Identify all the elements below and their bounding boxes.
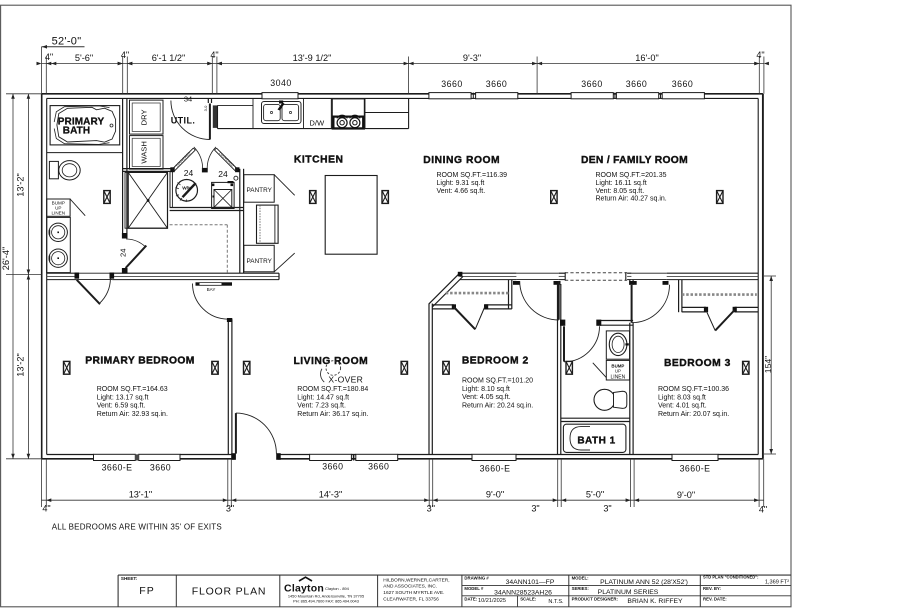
svg-text:LINEN: LINEN xyxy=(611,374,626,380)
svg-text:3": 3" xyxy=(427,504,435,514)
svg-text:FLOOR PLAN: FLOOR PLAN xyxy=(192,586,267,598)
svg-text:Light: 16.11 sq.ft: Light: 16.11 sq.ft xyxy=(596,180,647,187)
svg-text:PANTRY: PANTRY xyxy=(247,187,273,194)
svg-text:BEDROOM 2: BEDROOM 2 xyxy=(462,355,529,366)
svg-text:SERIES:: SERIES: xyxy=(572,586,590,591)
svg-text:34: 34 xyxy=(184,95,192,104)
svg-text:9'-0": 9'-0" xyxy=(677,490,695,500)
svg-text:4": 4" xyxy=(759,505,767,515)
svg-text:4": 4" xyxy=(756,50,764,60)
svg-text:Clayton - 894: Clayton - 894 xyxy=(325,586,350,591)
svg-text:DATE:: DATE: xyxy=(464,597,477,602)
svg-text:LIVING ROOM: LIVING ROOM xyxy=(293,356,368,367)
svg-text:SCALE:: SCALE: xyxy=(520,596,537,601)
svg-text:UTIL.: UTIL. xyxy=(171,116,196,126)
svg-text:3": 3" xyxy=(603,504,611,514)
svg-text:PH: 865.494.7600 FAX: 865.494.: PH: 865.494.7600 FAX: 865.494.0043 xyxy=(293,598,359,603)
svg-text:DEN / FAMILY ROOM: DEN / FAMILY ROOM xyxy=(581,155,688,166)
svg-text:13'-9 1/2": 13'-9 1/2" xyxy=(293,53,332,63)
svg-text:34ANN101—FP: 34ANN101—FP xyxy=(506,579,555,586)
svg-text:PRIMARY BEDROOM: PRIMARY BEDROOM xyxy=(85,356,195,367)
svg-text:BATH 1: BATH 1 xyxy=(577,436,615,447)
svg-text:3": 3" xyxy=(226,504,234,514)
svg-text:PRODUCT DESIGNER:: PRODUCT DESIGNER: xyxy=(572,596,619,601)
svg-text:UP: UP xyxy=(55,205,61,210)
svg-text:KITCHEN: KITCHEN xyxy=(294,155,344,166)
svg-text:BAY: BAY xyxy=(207,287,216,292)
svg-text:1627 SOUTH MYRTLE AVE.: 1627 SOUTH MYRTLE AVE. xyxy=(383,590,444,596)
svg-text:ROOM SQ.FT.=180.84: ROOM SQ.FT.=180.84 xyxy=(297,386,368,393)
svg-text:Light: 9.31 sq.ft: Light: 9.31 sq.ft xyxy=(437,180,485,187)
svg-text:3660-E: 3660-E xyxy=(680,464,711,474)
svg-text:14'-3": 14'-3" xyxy=(319,490,342,500)
svg-text:WASH: WASH xyxy=(140,141,149,164)
svg-text:Light: 8.10 sq.ft: Light: 8.10 sq.ft xyxy=(462,386,510,393)
svg-text:13'-2": 13'-2" xyxy=(16,353,26,376)
svg-text:W/H: W/H xyxy=(182,185,192,191)
svg-text:Light: 13.17 sq.ft: Light: 13.17 sq.ft xyxy=(97,394,149,401)
svg-text:PLATINUM SERIES: PLATINUM SERIES xyxy=(598,589,659,596)
svg-text:3660: 3660 xyxy=(322,461,343,471)
svg-text:D/W: D/W xyxy=(309,119,325,128)
svg-text:PANTRY: PANTRY xyxy=(247,258,273,265)
svg-text:3660: 3660 xyxy=(441,79,463,89)
svg-text:MODEL:: MODEL: xyxy=(572,575,590,580)
svg-text:Return Air: 40.27 sq.in.: Return Air: 40.27 sq.in. xyxy=(596,196,667,203)
svg-text:3660: 3660 xyxy=(672,79,694,89)
svg-text:3040: 3040 xyxy=(270,78,292,88)
svg-text:3": 3" xyxy=(531,504,539,514)
svg-text:Vent: 8.05 sq.ft.: Vent: 8.05 sq.ft. xyxy=(596,188,645,195)
svg-text:ALL BEDROOMS ARE WITHIN 35' OF: ALL BEDROOMS ARE WITHIN 35' OF EXITS xyxy=(52,523,222,532)
svg-text:SHEET:: SHEET: xyxy=(121,576,138,581)
svg-text:Return Air: 20.07 sq.in.: Return Air: 20.07 sq.in. xyxy=(658,411,729,418)
svg-text:Return Air: 36.17 sq.in.: Return Air: 36.17 sq.in. xyxy=(297,411,368,418)
svg-text:13'-2": 13'-2" xyxy=(16,173,26,196)
svg-text:3660: 3660 xyxy=(581,79,603,89)
svg-text:Vent: 4.66 sq.ft.: Vent: 4.66 sq.ft. xyxy=(437,188,486,195)
svg-text:4": 4" xyxy=(45,52,53,62)
svg-text:9'-0": 9'-0" xyxy=(486,490,504,500)
svg-text:5'-6": 5'-6" xyxy=(75,53,93,63)
svg-text:N.T.S.: N.T.S. xyxy=(548,599,564,605)
svg-text:3660: 3660 xyxy=(150,463,171,473)
svg-text:UP: UP xyxy=(615,368,621,373)
svg-text:HILBORN,WERNER,CARTER,: HILBORN,WERNER,CARTER, xyxy=(383,577,449,583)
svg-text:BEDROOM 3: BEDROOM 3 xyxy=(664,358,731,369)
svg-text:4": 4" xyxy=(121,50,129,60)
svg-text:Vent: 6.59 sq.ft.: Vent: 6.59 sq.ft. xyxy=(97,403,146,410)
svg-text:ROOM SQ.FT.=116.39: ROOM SQ.FT.=116.39 xyxy=(437,172,508,179)
svg-text:3660: 3660 xyxy=(368,461,389,471)
svg-text:52'-0": 52'-0" xyxy=(52,35,82,47)
svg-text:REV. DATE:: REV. DATE: xyxy=(703,597,727,602)
svg-text:3660-E: 3660-E xyxy=(480,464,511,474)
svg-text:ROOM SQ.FT.=101.20: ROOM SQ.FT.=101.20 xyxy=(462,378,533,385)
svg-text:AND ASSOCIATES, INC.: AND ASSOCIATES, INC. xyxy=(383,584,437,590)
svg-text:MODEL #: MODEL # xyxy=(464,586,484,591)
svg-text:DINING ROOM: DINING ROOM xyxy=(423,155,500,166)
svg-text:3660-E: 3660-E xyxy=(102,463,133,473)
svg-text:LINEN: LINEN xyxy=(52,211,66,216)
svg-text:FP: FP xyxy=(139,585,154,597)
svg-text:DRY: DRY xyxy=(140,109,149,125)
svg-text:3660: 3660 xyxy=(626,79,648,89)
svg-text:ROOM SQ.FT.=100.36: ROOM SQ.FT.=100.36 xyxy=(658,386,729,393)
svg-text:Vent: 7.23 sq.ft.: Vent: 7.23 sq.ft. xyxy=(297,403,346,410)
svg-text:3660: 3660 xyxy=(486,79,508,89)
svg-text:3-0: 3-0 xyxy=(203,105,208,112)
svg-text:Return Air: 32.93 sq.in.: Return Air: 32.93 sq.in. xyxy=(97,411,168,418)
svg-text:DRAWING #: DRAWING # xyxy=(464,575,489,580)
svg-text:6'-1 1/2": 6'-1 1/2" xyxy=(152,53,186,63)
svg-text:REV. BY:: REV. BY: xyxy=(703,586,721,591)
svg-text:BRIAN K. RIFFEY: BRIAN K. RIFFEY xyxy=(627,598,683,605)
svg-text:34ANN28523AH26: 34ANN28523AH26 xyxy=(494,589,552,596)
svg-text:5'-0": 5'-0" xyxy=(586,490,604,500)
svg-text:Vent: 4.05 sq.ft.: Vent: 4.05 sq.ft. xyxy=(462,394,511,401)
svg-text:CLEARWATER, FL 33756: CLEARWATER, FL 33756 xyxy=(383,597,439,603)
svg-text:9'-3": 9'-3" xyxy=(463,53,481,63)
svg-text:24: 24 xyxy=(118,249,127,257)
svg-text:PLATINUM ANN 52 (28'X52'): PLATINUM ANN 52 (28'X52') xyxy=(600,579,688,586)
svg-text:Vent: 4.01 sq.ft.: Vent: 4.01 sq.ft. xyxy=(658,403,707,410)
svg-text:ROOM SQ.FT.=201.35: ROOM SQ.FT.=201.35 xyxy=(596,172,667,179)
svg-text:13'-1": 13'-1" xyxy=(129,490,152,500)
svg-text:4": 4" xyxy=(42,504,50,514)
svg-text:4": 4" xyxy=(210,50,218,60)
svg-text:154": 154" xyxy=(763,356,773,373)
svg-text:Light: 8.03 sq.ft: Light: 8.03 sq.ft xyxy=(658,394,706,401)
svg-text:16'-0": 16'-0" xyxy=(635,53,658,63)
svg-text:STD PLAN "CONDITIONED":: STD PLAN "CONDITIONED": xyxy=(703,575,759,580)
svg-text:24: 24 xyxy=(218,169,228,179)
svg-text:X-OVER: X-OVER xyxy=(328,375,363,385)
svg-text:24: 24 xyxy=(184,168,194,178)
svg-text:ROOM SQ.FT.=164.63: ROOM SQ.FT.=164.63 xyxy=(97,386,168,393)
svg-text:26'-4": 26'-4" xyxy=(1,247,11,270)
svg-text:Return Air: 20.24 sq.in.: Return Air: 20.24 sq.in. xyxy=(462,402,533,409)
svg-text:Light: 14.47 sq.ft: Light: 14.47 sq.ft xyxy=(297,394,349,401)
svg-text:10/21/2025: 10/21/2025 xyxy=(478,598,506,604)
svg-text:BATH: BATH xyxy=(63,126,90,137)
svg-text:1,369 FT²: 1,369 FT² xyxy=(765,580,789,586)
